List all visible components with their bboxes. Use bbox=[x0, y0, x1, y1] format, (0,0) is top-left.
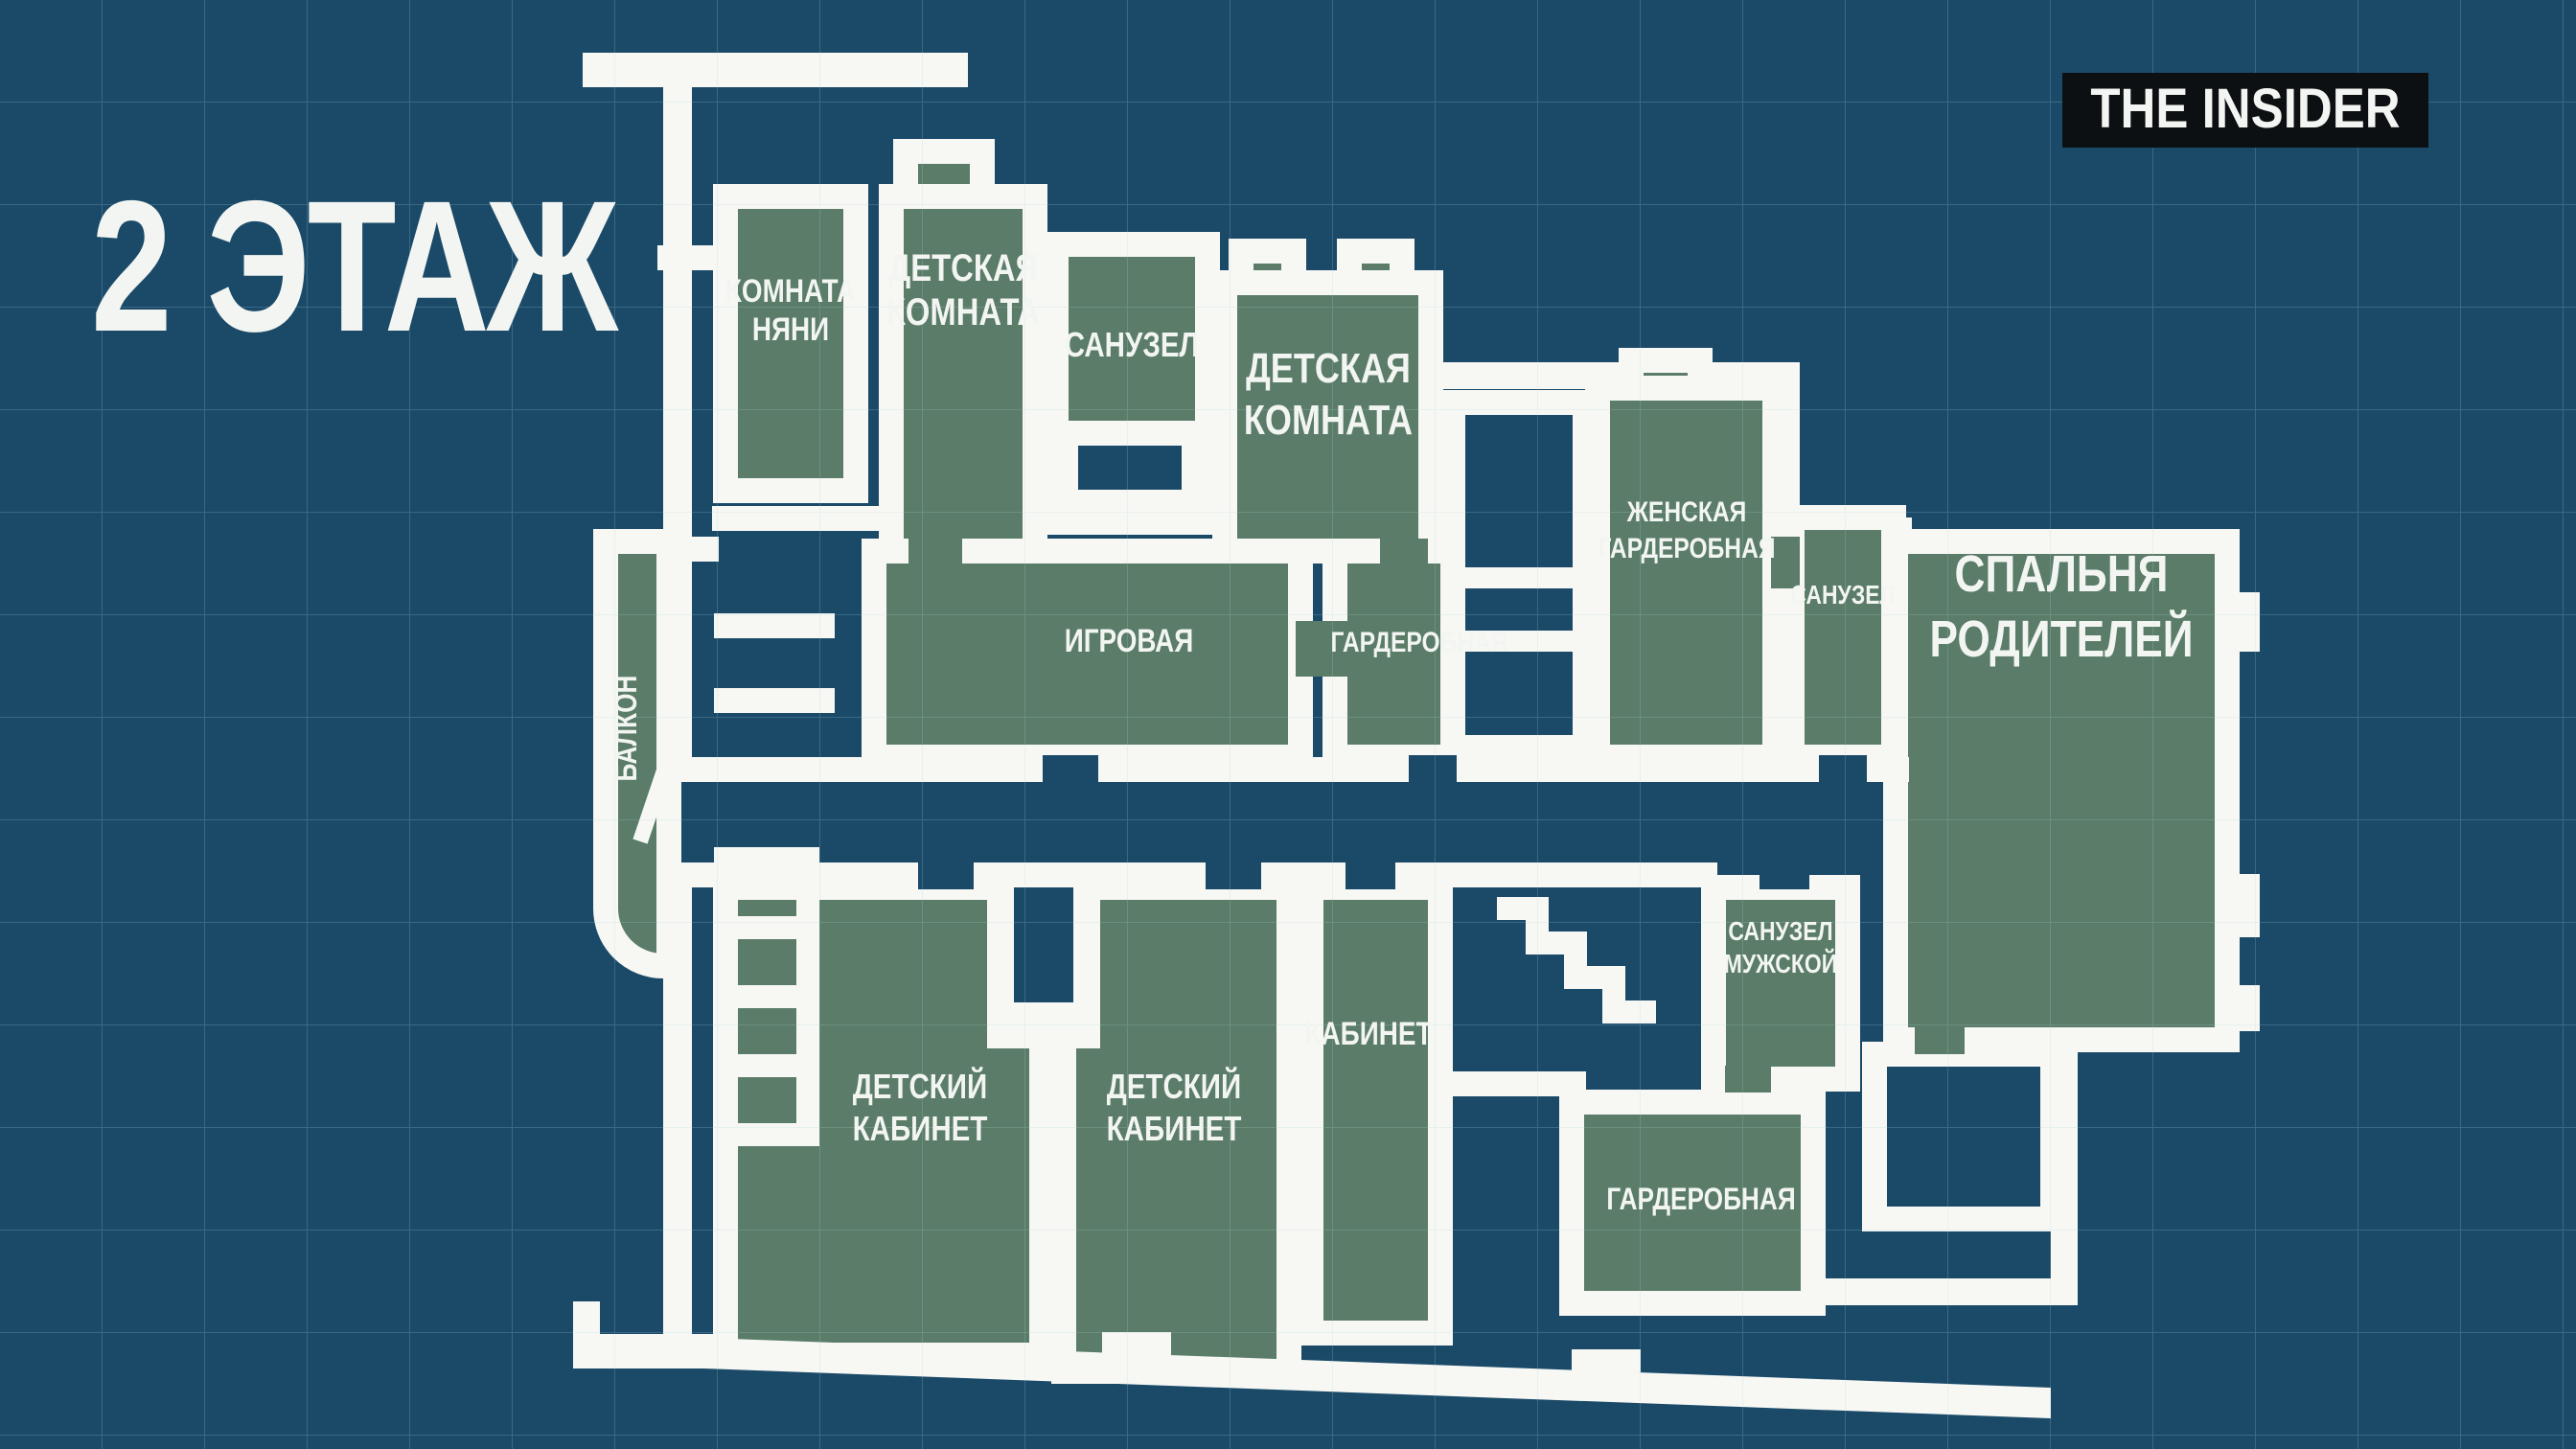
logo-text: THE INSIDER bbox=[2090, 78, 2400, 140]
label-nanny-1: КОМНАТА bbox=[725, 272, 856, 309]
floor-plan-page: КОМНАТАНЯНИ ДЕТСКАЯКОМНАТА САНУЗЕЛ ДЕТСК… bbox=[0, 0, 2576, 1449]
label-kids-center-2: КОМНАТА bbox=[1244, 397, 1413, 444]
label-bath-top: САНУЗЕЛ bbox=[1065, 325, 1199, 363]
label-nanny-2: НЯНИ bbox=[752, 310, 829, 347]
floor-title-group: 2 ЭТАЖ bbox=[91, 163, 619, 371]
label-kids-left-1: ДЕТСКАЯ bbox=[888, 246, 1038, 289]
label-kids-left-2: КОМНАТА bbox=[886, 290, 1040, 333]
logo: THE INSIDER bbox=[2062, 73, 2428, 148]
label-kids-office-right-1: ДЕТСКИЙ bbox=[1107, 1066, 1241, 1106]
label-wardrobe-bottom: ГАРДЕРОБНАЯ bbox=[1606, 1184, 1795, 1217]
label-wardrobe-center: ГАРДЕРОБНАЯ bbox=[1331, 626, 1508, 658]
label-bath-male-1: САНУЗЕЛ bbox=[1728, 917, 1832, 947]
label-kids-office-left-1: ДЕТСКИЙ bbox=[853, 1066, 987, 1106]
label-kids-office-right-2: КАБИНЕТ bbox=[1107, 1109, 1242, 1147]
label-women-wardrobe-2: ГАРДЕРОБНАЯ bbox=[1598, 532, 1776, 564]
label-playroom: ИГРОВАЯ bbox=[1065, 622, 1194, 658]
floor-title: 2 ЭТАЖ bbox=[91, 163, 619, 371]
label-office: КАБИНЕТ bbox=[1305, 1015, 1433, 1051]
label-kids-center-1: ДЕТСКАЯ bbox=[1246, 345, 1411, 392]
label-master-bedroom-2: РОДИТЕЛЕЙ bbox=[1929, 609, 2193, 668]
floor-plan-canvas: КОМНАТАНЯНИ ДЕТСКАЯКОМНАТА САНУЗЕЛ ДЕТСК… bbox=[0, 0, 2576, 1449]
label-bath-right: САНУЗЕЛ bbox=[1790, 581, 1895, 610]
label-women-wardrobe-1: ЖЕНСКАЯ bbox=[1626, 495, 1746, 528]
label-kids-office-left-2: КАБИНЕТ bbox=[853, 1109, 988, 1147]
label-master-bedroom-1: СПАЛЬНЯ bbox=[1955, 545, 2169, 603]
label-bath-male-2: МУЖСКОЙ bbox=[1724, 948, 1838, 979]
label-balcony: БАЛКОН bbox=[610, 676, 644, 782]
